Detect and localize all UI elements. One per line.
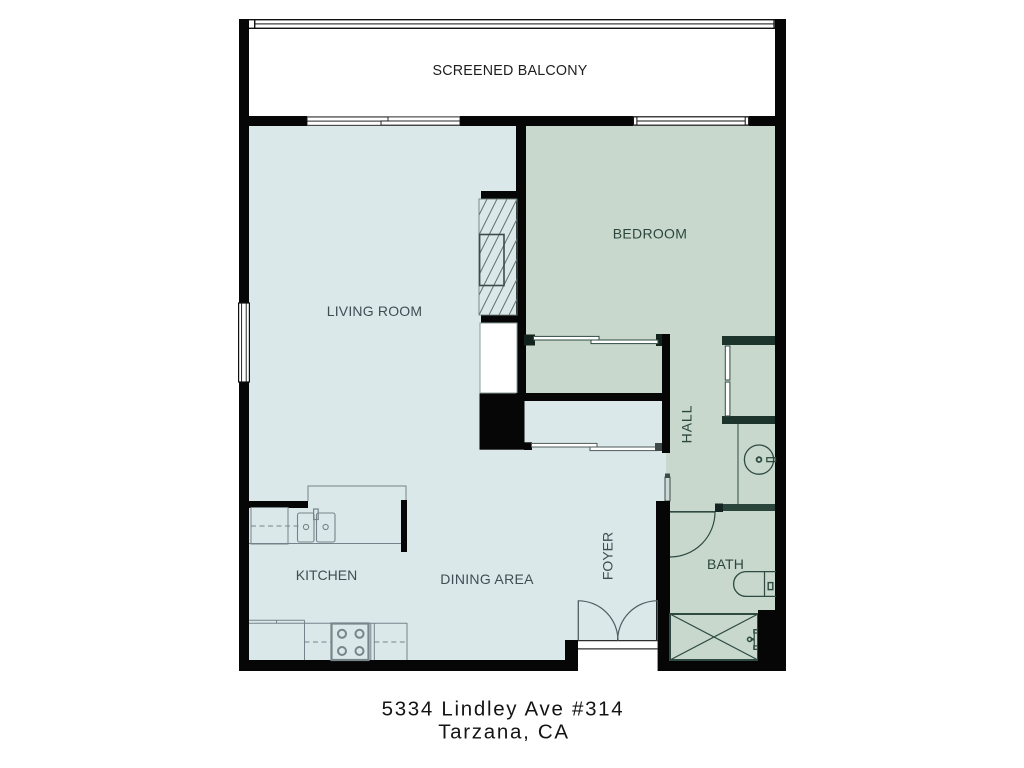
svg-text:HALL: HALL xyxy=(679,405,695,444)
svg-text:Tarzana, CA: Tarzana, CA xyxy=(438,721,570,744)
svg-text:BATH: BATH xyxy=(707,556,744,572)
svg-text:KITCHEN: KITCHEN xyxy=(296,567,357,583)
svg-text:SCREENED BALCONY: SCREENED BALCONY xyxy=(433,63,588,79)
svg-text:BEDROOM: BEDROOM xyxy=(613,226,687,242)
svg-text:DINING AREA: DINING AREA xyxy=(440,571,534,587)
svg-text:LIVING ROOM: LIVING ROOM xyxy=(327,303,423,319)
svg-text:FOYER: FOYER xyxy=(600,532,616,580)
svg-text:5334 Lindley Ave #314: 5334 Lindley Ave #314 xyxy=(382,698,625,721)
